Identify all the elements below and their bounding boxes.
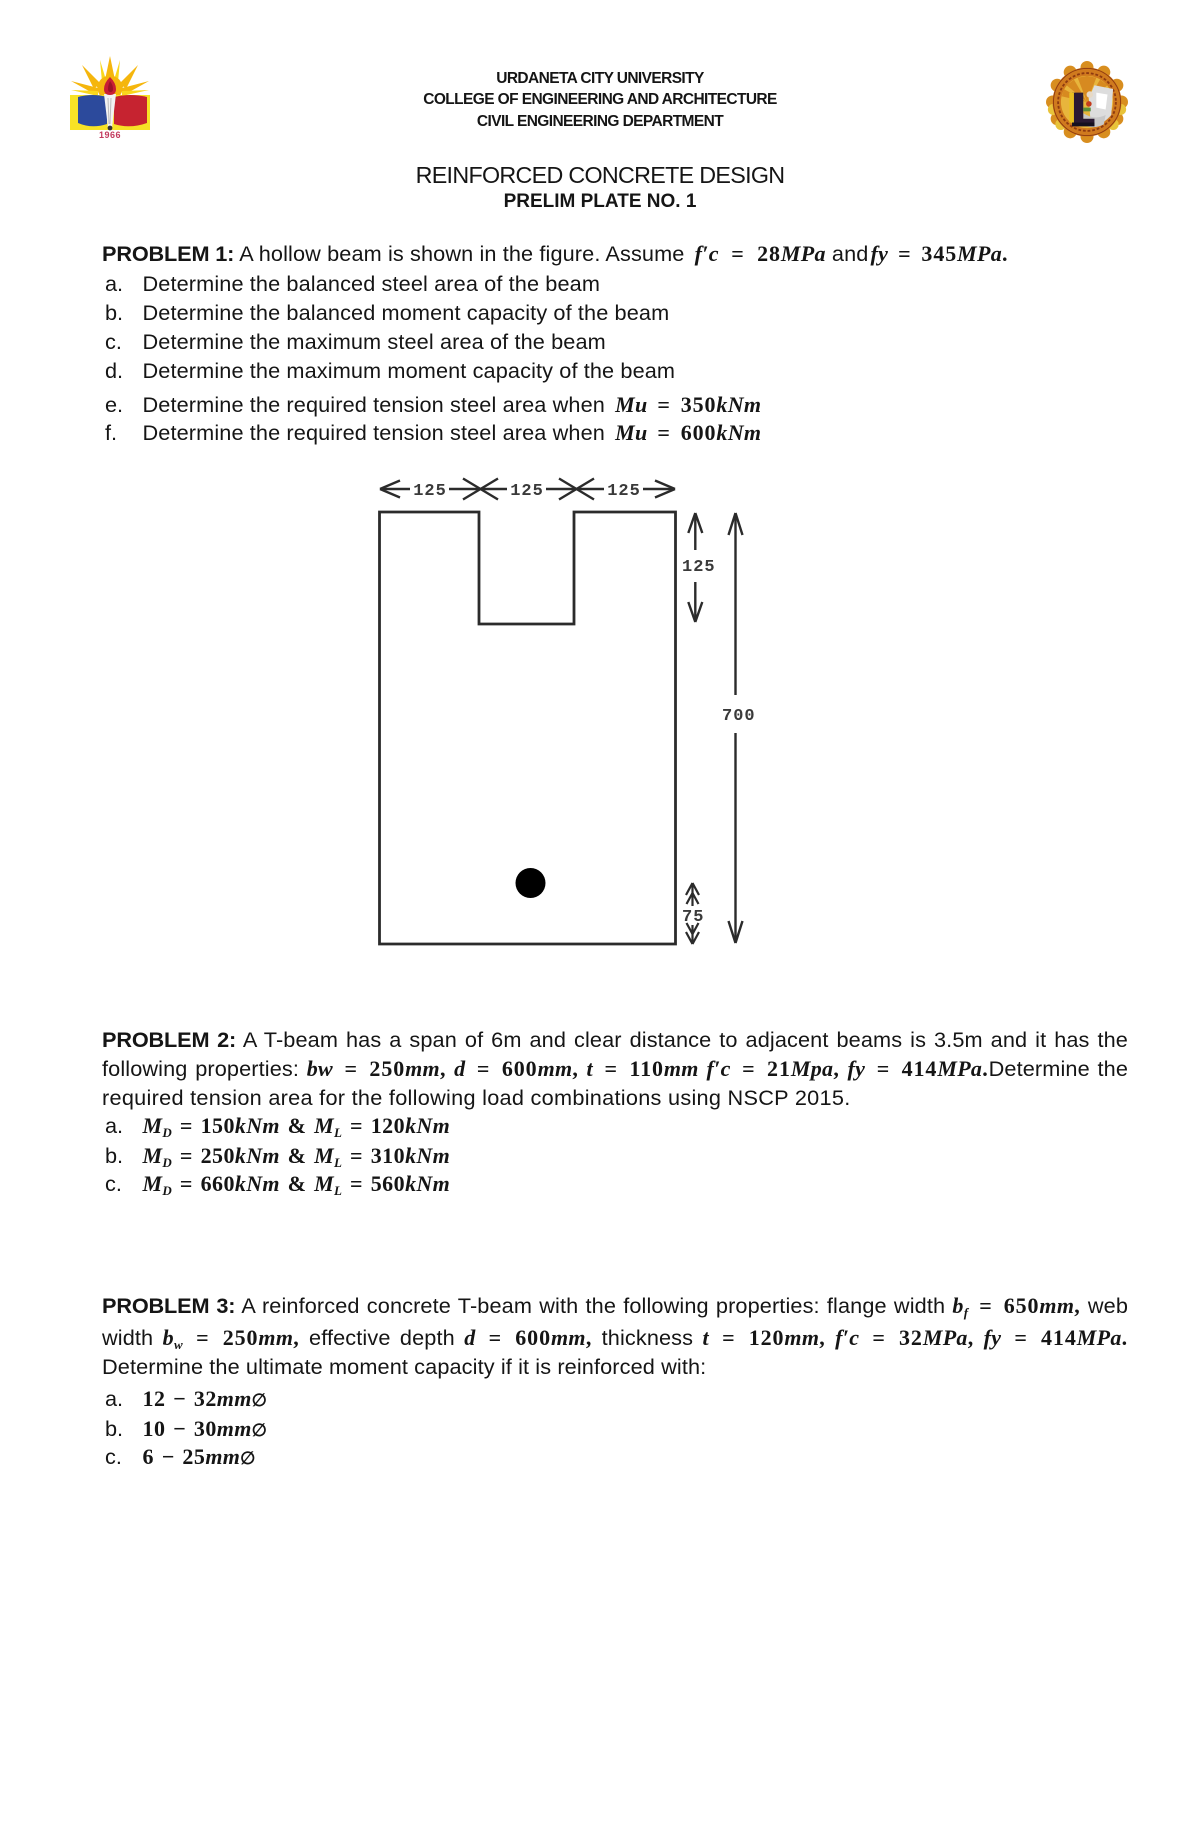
svg-text:125: 125 — [413, 482, 447, 501]
svg-text:75: 75 — [682, 908, 704, 927]
svg-text:125: 125 — [682, 558, 716, 577]
svg-text:700: 700 — [722, 707, 756, 726]
svg-text:125: 125 — [510, 482, 544, 501]
svg-text:125: 125 — [607, 482, 641, 501]
